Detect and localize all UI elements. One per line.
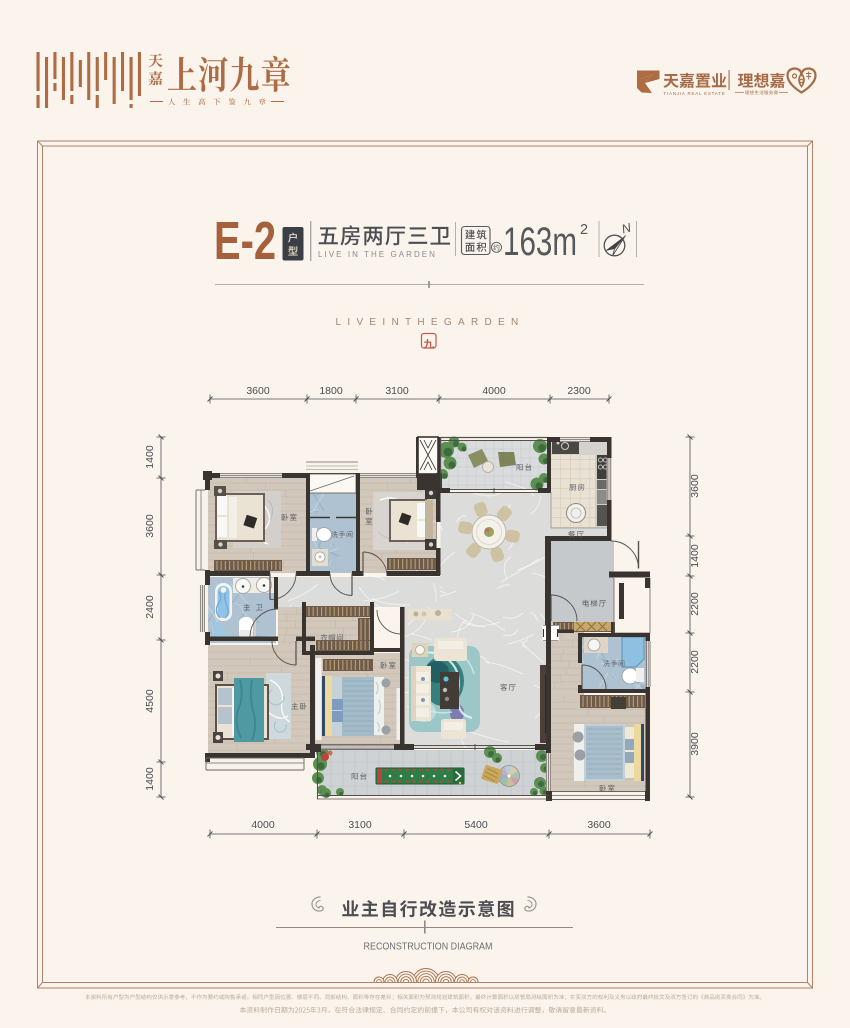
svg-text:1800: 1800 <box>319 385 343 397</box>
svg-text:3100: 3100 <box>348 819 372 831</box>
svg-text:1400: 1400 <box>144 445 156 469</box>
svg-text:3900: 3900 <box>689 732 701 756</box>
svg-text:163m: 163m <box>503 220 577 264</box>
svg-text:LIVEINTHEGARDEN: LIVEINTHEGARDEN <box>336 317 525 328</box>
svg-text:3600: 3600 <box>246 385 270 397</box>
svg-text:2400: 2400 <box>144 595 156 619</box>
svg-text:4500: 4500 <box>144 689 156 713</box>
svg-text:3600: 3600 <box>587 819 611 831</box>
svg-text:2200: 2200 <box>689 592 701 616</box>
svg-text:RECONSTRUCTION DIAGRAM: RECONSTRUCTION DIAGRAM <box>364 941 493 953</box>
svg-text:3600: 3600 <box>689 474 701 498</box>
svg-text:2300: 2300 <box>567 385 591 397</box>
svg-text:1400: 1400 <box>689 544 701 568</box>
svg-text:3600: 3600 <box>144 514 156 538</box>
svg-text:4000: 4000 <box>482 385 506 397</box>
svg-text:2200: 2200 <box>689 650 701 674</box>
svg-text:4000: 4000 <box>251 819 275 831</box>
svg-text:1400: 1400 <box>144 767 156 791</box>
svg-text:TIANJIA REAL ESTATE: TIANJIA REAL ESTATE <box>664 91 726 97</box>
svg-text:3100: 3100 <box>385 385 409 397</box>
svg-text:2: 2 <box>580 222 588 238</box>
svg-text:5400: 5400 <box>464 819 488 831</box>
svg-text:E-2: E-2 <box>214 211 276 271</box>
svg-text:LIVE IN THE GARDEN: LIVE IN THE GARDEN <box>318 250 437 259</box>
